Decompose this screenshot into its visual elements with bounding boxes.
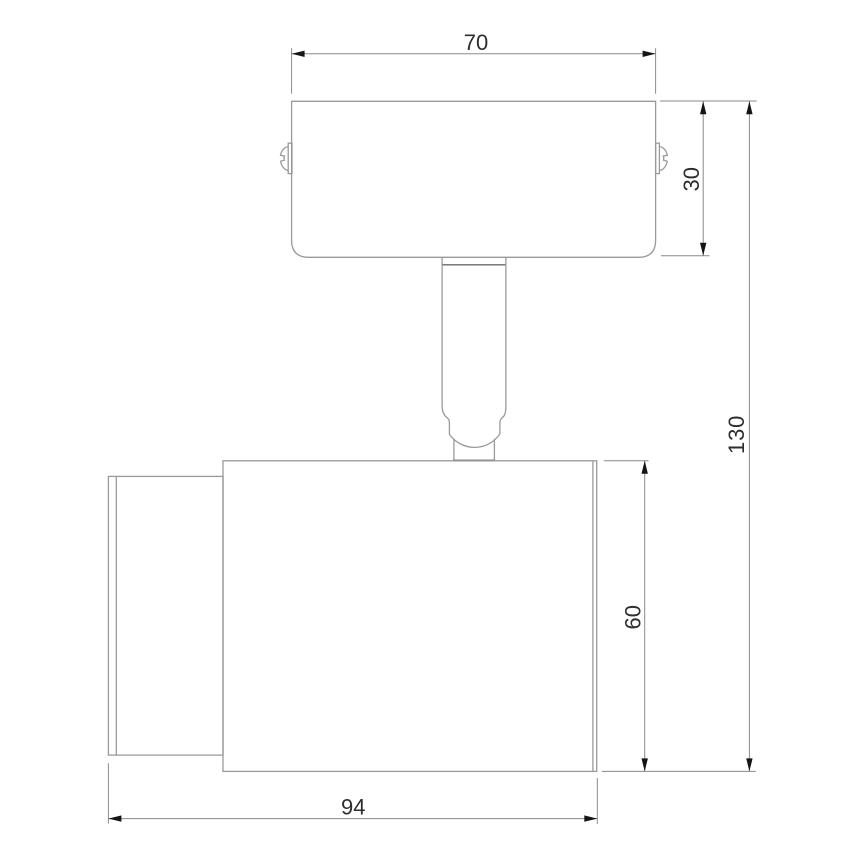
svg-text:70: 70 [464, 30, 488, 55]
svg-text:60: 60 [620, 605, 645, 629]
svg-text:94: 94 [341, 794, 365, 819]
svg-text:130: 130 [724, 415, 749, 454]
svg-text:30: 30 [679, 167, 704, 191]
